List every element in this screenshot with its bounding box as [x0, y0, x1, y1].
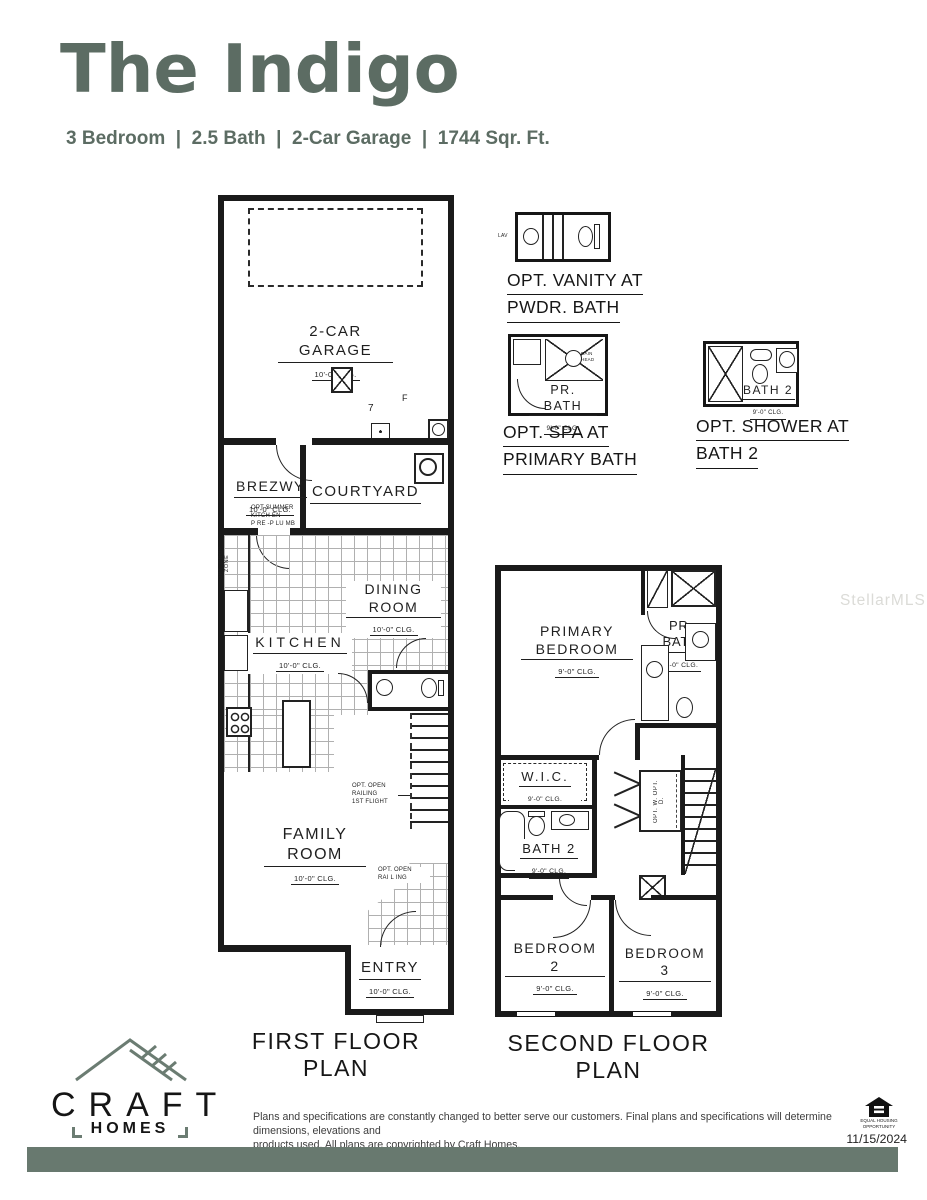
garage-door-dashed	[248, 208, 423, 287]
sink-icon	[750, 349, 772, 361]
pantry	[224, 635, 248, 671]
flyer-page: The Indigo 3 Bedroom | 2.5 Bath | 2-Car …	[0, 0, 927, 1200]
fixture-box	[371, 423, 390, 439]
wall	[495, 895, 553, 900]
first-floor-plan: 2-CAR GARAGE 10'-0" CLG. 7 F BREZWY 10'-…	[218, 195, 454, 1023]
window	[633, 1011, 671, 1017]
footer-bar	[27, 1147, 898, 1172]
fridge	[224, 590, 248, 632]
rain-head-label: RAIN HEAD	[581, 351, 594, 363]
summer-kitchen-note: OPT SUMMER KITCH EN P RE -P LU MB	[251, 505, 299, 528]
lav-label: LAV	[498, 233, 508, 240]
room-ceiling: 9'-0" CLG.	[555, 666, 599, 678]
wall	[218, 438, 276, 445]
staircase	[410, 713, 448, 829]
bifold-door-line	[614, 771, 640, 784]
page-title: The Indigo	[60, 30, 460, 108]
door-arc	[615, 900, 651, 936]
wall	[635, 723, 640, 760]
wall	[609, 895, 614, 1011]
bracket-right-icon	[178, 1127, 188, 1138]
dining-label: DINING ROOM 10'-0" CLG.	[346, 581, 441, 638]
sink-icon	[523, 228, 539, 245]
room-name: DINING ROOM	[346, 581, 441, 618]
water-heater-circle	[432, 423, 445, 436]
opt-spa-diagram: RAIN HEAD PR. BATH 9'-0" CLG.	[508, 334, 608, 416]
craft-roof-logo-icon	[72, 1032, 190, 1082]
sink-icon	[779, 351, 795, 368]
wall	[716, 565, 722, 1017]
opt-vanity-caption: OPT. VANITY AT PWDR. BATH	[507, 268, 643, 323]
bifold-door-line	[614, 815, 640, 828]
toilet-tank-icon	[594, 224, 600, 249]
room-name: W.I.C.	[519, 769, 570, 787]
wall	[651, 895, 722, 900]
wall	[495, 805, 597, 809]
wall	[592, 805, 597, 877]
wall	[635, 723, 722, 728]
drop-zone-note: OPT. DROP ZONE	[218, 543, 232, 583]
opt-shower-caption: OPT. SHOWER AT BATH 2	[696, 414, 849, 469]
entry-label: ENTRY 10'-0" CLG.	[346, 958, 434, 1000]
wic-label: W.I.C. 9'-0" CLG.	[509, 767, 581, 807]
equal-housing-icon	[864, 1096, 894, 1118]
open-railing-note-2: OPT. OPEN RAI L ING	[378, 867, 430, 883]
disclaimer: Plans and specifications are constantly …	[253, 1110, 873, 1152]
room-name: COURTYARD	[310, 483, 421, 504]
stair-diagonal	[685, 768, 716, 874]
wall	[562, 215, 564, 259]
room-name: FAMILY ROOM	[264, 825, 366, 867]
family-label: FAMILY ROOM 10'-0" CLG.	[264, 825, 366, 887]
brand-sub-text: HOMES	[91, 1120, 170, 1138]
room-name: PR. BATH	[529, 383, 597, 416]
opt-vanity-diagram: LAV	[515, 212, 611, 262]
disclaimer-line1: Plans and specifications are constantly …	[253, 1110, 873, 1138]
room-name: BEDROOM 2	[505, 940, 605, 977]
laundry-note: OPT. W. OPT. D.	[653, 775, 665, 827]
marker-7: 7	[368, 403, 374, 414]
kitchen-label: KITCHEN 10'-0" CLG.	[248, 633, 352, 674]
open-railing-note-1: OPT. OPEN RAILING 1ST FLIGHT	[352, 783, 400, 806]
grill-icon	[414, 453, 444, 484]
sink-icon	[559, 814, 575, 826]
sink-icon	[376, 679, 393, 696]
second-floor-plan-label: SECOND FLOOR PLAN	[495, 1030, 722, 1084]
courtyard-label: COURTYARD	[310, 482, 410, 504]
page-subtitle: 3 Bedroom | 2.5 Bath | 2-Car Garage | 17…	[66, 128, 550, 150]
rain-head-icon	[565, 350, 582, 367]
bedroom3-label: BEDROOM 3 9'-0" CLG.	[619, 946, 711, 1002]
second-floor-plan: PR. BATH 9'-0" CLG. PRIMARY BEDROOM 9'-0…	[495, 565, 722, 1017]
bifold-door-line	[614, 803, 640, 816]
wall	[495, 755, 599, 760]
room-name: 2-CAR GARAGE	[278, 323, 393, 363]
water-heater	[428, 419, 449, 440]
wall	[495, 565, 501, 1017]
opt-shower-caption-line1: OPT. SHOWER AT	[696, 414, 849, 441]
room-name: BATH 2	[741, 383, 795, 400]
toilet-icon	[528, 816, 545, 836]
wall	[218, 528, 258, 535]
opt-shower-caption-line2: BATH 2	[696, 441, 758, 468]
wall	[552, 215, 554, 259]
bifold-line	[676, 774, 677, 828]
room-ceiling: 10'-0" CLG.	[366, 986, 414, 998]
equal-housing-text: EQUAL HOUSING OPPORTUNITY	[853, 1118, 905, 1130]
opt-vanity-caption-line2: PWDR. BATH	[507, 295, 620, 322]
wall	[290, 528, 454, 535]
bracket-left-icon	[72, 1127, 82, 1138]
opt-spa-caption-line1: OPT. SPA AT	[503, 420, 609, 447]
closet	[513, 339, 541, 365]
room-ceiling: 10'-0" CLG.	[291, 873, 339, 885]
opt-spa-caption-line2: PRIMARY BATH	[503, 447, 637, 474]
wall	[218, 945, 350, 952]
date: 11/15/2024	[843, 1132, 907, 1146]
window	[517, 1011, 555, 1017]
wall	[368, 670, 372, 711]
toilet-icon	[676, 697, 693, 718]
room-name: ENTRY	[359, 959, 421, 980]
wall	[368, 707, 454, 711]
brand-sub: HOMES	[58, 1120, 202, 1138]
grill-circle	[419, 458, 437, 476]
room-name: BREZWY	[234, 478, 307, 498]
linen-closet	[647, 570, 668, 608]
kitchen-island	[282, 700, 311, 768]
toilet-icon	[421, 678, 437, 698]
entry-step	[376, 1015, 424, 1023]
door-arc	[276, 445, 312, 481]
opt-shower-diagram: BATH 2 9'-0" CLG.	[703, 341, 799, 407]
first-floor-plan-label: FIRST FLOOR PLAN	[218, 1028, 454, 1082]
room-name: PRIMARY BEDROOM	[521, 623, 633, 660]
wall	[448, 195, 454, 1015]
room-name: BEDROOM 3	[619, 946, 711, 982]
sink-icon	[646, 661, 663, 678]
room-name: BATH 2	[520, 841, 578, 859]
room-ceiling: 9'-0" CLG.	[643, 988, 687, 1000]
primary-bedroom-label: PRIMARY BEDROOM 9'-0" CLG.	[521, 623, 633, 680]
opt-spa-caption: OPT. SPA AT PRIMARY BATH	[503, 420, 637, 475]
marker-f: F	[402, 393, 408, 403]
wall	[312, 438, 454, 445]
shower-icon	[671, 570, 716, 607]
stove-icon	[226, 707, 252, 737]
wall	[592, 755, 597, 809]
sink-icon	[692, 631, 709, 648]
watermark: StellarMLS	[840, 592, 926, 610]
wall	[368, 670, 454, 674]
opt-vanity-caption-line1: OPT. VANITY AT	[507, 268, 643, 295]
wall	[218, 195, 454, 201]
room-ceiling: 9'-0" CLG.	[533, 983, 577, 995]
garage-equipment-icon	[331, 367, 353, 393]
laundry-closet: OPT. W. OPT. D.	[639, 770, 682, 832]
wall	[542, 215, 544, 259]
room-name: KITCHEN	[253, 634, 346, 654]
toilet-tank-icon	[438, 680, 444, 696]
bifold-door-line	[614, 783, 640, 796]
room-ceiling: 10'-0" CLG.	[370, 624, 418, 636]
door-arc	[553, 900, 591, 938]
room-ceiling: 10'-0" CLG.	[276, 660, 324, 672]
door-arc	[599, 719, 635, 755]
leader-line	[398, 795, 410, 796]
vanity	[641, 645, 669, 721]
bedroom2-label: BEDROOM 2 9'-0" CLG.	[505, 940, 605, 997]
wall	[641, 565, 645, 615]
toilet-icon	[578, 226, 593, 247]
